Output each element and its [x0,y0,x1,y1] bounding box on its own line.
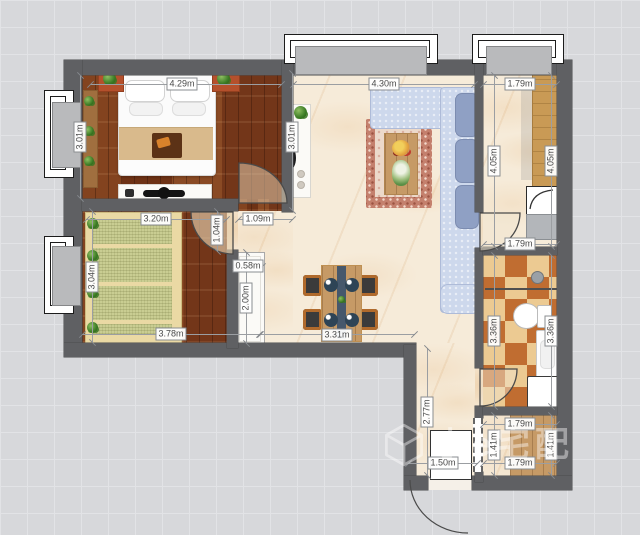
dimension-label: 1.79m [504,238,535,251]
flower-bouquet-icon [392,140,410,156]
toilet-bowl[interactable] [513,303,540,329]
wall-bottom-entry-b [472,476,572,490]
dimension-label: 1.41m [545,429,558,460]
dimension-label: 1.09m [242,213,273,226]
dimension-label: 3.01m [74,121,87,152]
bathroom-door[interactable] [476,365,522,410]
wall-bath-left-upper [475,248,483,368]
dimension-label: 2.00m [240,282,253,313]
dining-chair[interactable] [303,309,322,330]
dimension-label: 3.31m [321,329,352,342]
dimension-label: 4.29m [166,78,197,91]
sink-basin-icon [527,187,557,212]
plant-icon [338,296,345,303]
window-sill-tatami [52,246,81,306]
floor-plan-canvas[interactable]: 4.29m 4.30m 1.79m 3.01m 3.01m 3.20m 1.09… [0,0,640,535]
dimension-label: 3.20m [140,213,171,226]
tatami-divider [93,282,172,286]
washing-machine[interactable] [527,376,560,408]
dimension-label: 0.58m [232,260,263,273]
dining-chair[interactable] [303,275,322,296]
plant-icon[interactable] [294,106,307,119]
dimension-label: 4.05m [545,145,558,176]
counter-shadow [521,90,532,180]
dimension-label: 2.77m [421,396,434,427]
speaker-icon [125,189,134,197]
place-setting [324,313,338,327]
place-setting [324,278,338,292]
sofa-chaise[interactable] [370,87,444,129]
bedroom-door[interactable] [235,158,291,208]
window-sill-living [295,46,427,75]
shower-rail [485,288,557,290]
wall-entry-stub [475,472,483,482]
decor-dish [297,170,305,178]
tatami-divider [93,244,172,248]
shower-head-icon [531,271,544,284]
kitchen-appliance[interactable] [526,214,560,240]
dimension-label: 1.79m [504,78,535,91]
dimension-label: 4.30m [368,78,399,91]
tv-stand-icon [158,187,170,199]
dimension-label: 3.01m [286,121,299,152]
dimension-label: 1.79m [504,457,535,470]
plant-icon[interactable] [84,156,94,166]
bed-pillow-small [129,102,163,116]
window-sill-kitchen [486,46,552,75]
place-setting [345,278,359,292]
kitchen-sink[interactable] [526,186,560,215]
bedroom-rug[interactable] [152,133,182,158]
decor-dish [297,181,305,189]
dimension-label: 1.79m [504,418,535,431]
wall-corridor-left [404,345,416,490]
tatami-platform-bed[interactable] [85,212,182,344]
sofa-armrest [440,284,480,314]
dimension-label: 3.78m [155,328,186,341]
dimension-label: 4.05m [488,145,501,176]
coffee-table[interactable] [384,133,418,195]
tatami-mat [93,220,172,334]
tatami-divider [93,320,172,324]
wall-right [557,60,572,490]
bed-pillow-small [172,102,206,116]
dimension-label: 3.36m [545,315,558,346]
wall-bottom-main [64,343,416,357]
dimension-label: 1.50m [427,457,458,470]
plant-icon[interactable] [84,96,94,106]
dimension-label: 1.41m [488,429,501,460]
dimension-label: 3.36m [488,315,501,346]
flower-vase-icon [392,160,410,186]
place-setting [345,313,359,327]
bed-foot-fold [119,160,213,173]
rug-cushion [156,136,171,148]
dimension-label: 3.04m [86,261,99,292]
dimension-label: 1.04m [211,214,224,245]
entry-door-swing [404,476,474,535]
entry-door-leaf[interactable] [430,430,472,480]
